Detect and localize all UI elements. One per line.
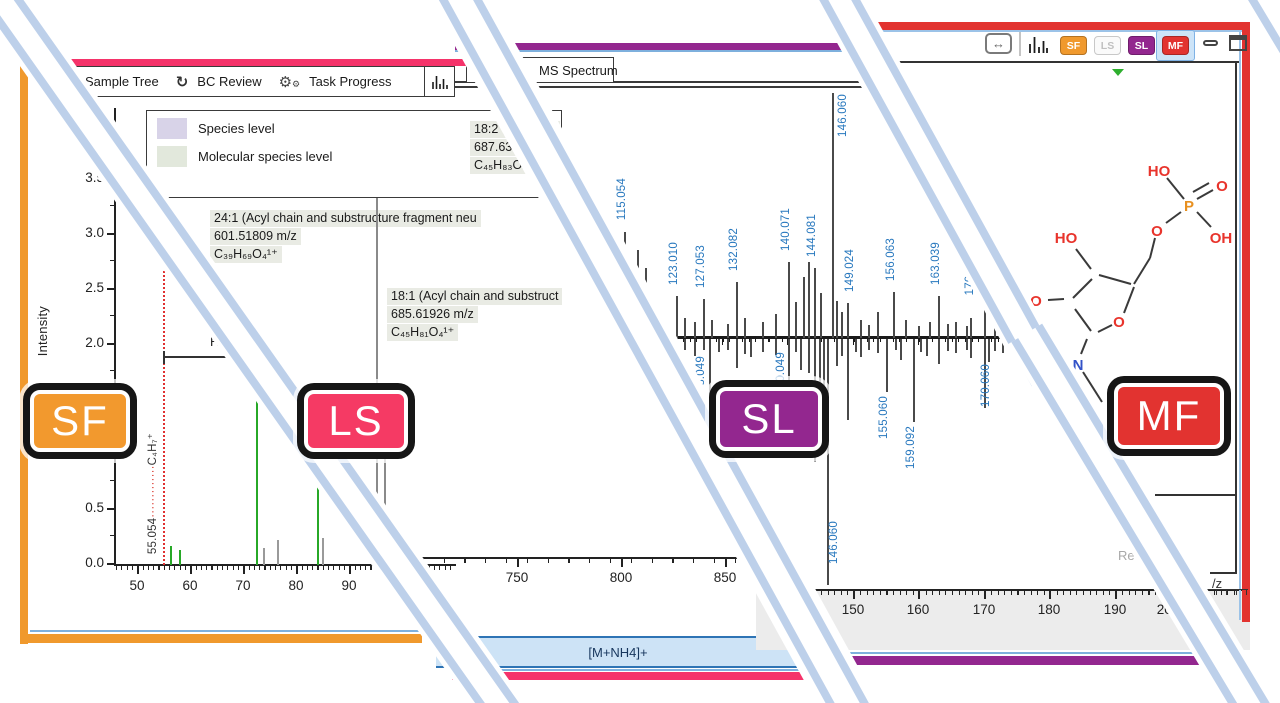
spectrum-icon	[431, 74, 449, 89]
peak-label: 140.071	[780, 208, 793, 251]
band-minor-tick	[847, 591, 848, 595]
sl-peak-down	[988, 339, 990, 362]
x-minor-tick	[360, 566, 361, 570]
y-tick	[107, 233, 115, 235]
ls-x-tick-label: 750	[500, 570, 534, 585]
sl-base-minor-tick	[978, 339, 979, 343]
band-minor-tick	[834, 591, 835, 595]
band-minor-tick	[841, 591, 842, 595]
sl-peak-down	[694, 339, 696, 356]
band-tick-label: 160	[901, 602, 935, 617]
band-minor-tick	[1070, 591, 1071, 595]
band-minor-tick	[965, 591, 966, 595]
ls-minor-tick	[714, 559, 715, 563]
ls-minor-tick	[652, 559, 653, 563]
fit-width-icon[interactable]: ↔	[985, 33, 1012, 54]
x-minor-tick	[249, 566, 250, 570]
sl-peak-up	[795, 302, 797, 338]
sl-peak-down	[855, 339, 857, 352]
band-minor-tick	[1004, 591, 1005, 595]
x-minor-tick	[264, 566, 265, 570]
x-minor-tick	[217, 566, 218, 570]
sl-base-minor-tick	[893, 339, 894, 343]
ls-adduct-label: [M+NH4]+	[588, 645, 647, 660]
sl-peak-down	[877, 339, 879, 353]
sl-peak-up	[684, 318, 686, 338]
sl-peak-up	[775, 314, 777, 338]
sl-peak-up	[847, 303, 849, 338]
x-minor-tick	[317, 566, 318, 570]
sl-peak-up	[762, 322, 764, 338]
peak-label: 132.082	[728, 228, 741, 271]
band-tick	[853, 591, 855, 599]
sl-peak-up	[929, 322, 931, 338]
sl-peak-up	[744, 318, 746, 338]
sl-peak-down	[955, 339, 957, 353]
peak-label: 156.063	[885, 238, 898, 281]
x-minor-tick	[148, 566, 149, 570]
x-minor-tick	[450, 566, 451, 570]
band-minor-tick	[1031, 591, 1032, 595]
x-minor-tick	[227, 566, 228, 570]
sl-peak-up	[868, 325, 870, 338]
x-minor-tick	[185, 566, 186, 570]
sl-base-minor-tick	[873, 339, 874, 343]
y-minor-tick	[110, 370, 115, 371]
atom-label: P	[1184, 198, 1194, 215]
sl-peak-up	[938, 296, 940, 338]
sl-peak-up	[814, 268, 816, 338]
sl-peak-down	[836, 339, 838, 366]
y-minor-tick	[110, 480, 115, 481]
y-minor-tick	[110, 315, 115, 316]
atom-label: HO	[1055, 230, 1078, 247]
mf-axis-tick	[1216, 589, 1217, 595]
sl-peak-up	[711, 320, 713, 338]
peak-label: 163.039	[930, 242, 943, 285]
peak-label: 127.053	[695, 245, 708, 288]
band-minor-tick	[939, 591, 940, 595]
x-minor-tick	[445, 566, 446, 570]
ls-x-tick	[621, 559, 623, 567]
sl-base-minor-tick	[972, 339, 973, 343]
band-minor-tick	[991, 591, 992, 595]
atom-label: HO	[1148, 163, 1171, 180]
sl-base-minor-tick	[782, 339, 783, 343]
sl-peak-up	[947, 324, 949, 338]
sl-peak-down	[966, 339, 968, 350]
sl-peak-down	[926, 339, 928, 356]
y-tick-label: 2.5	[72, 280, 104, 295]
sl-peak-down	[841, 339, 843, 356]
ls-minor-tick	[735, 559, 736, 563]
sf-window-left-border	[20, 48, 28, 644]
sf-tab-bar: Sample Tree ↻ BC Review ⚙⚙ Task Progress	[63, 66, 425, 97]
spectrum-toolbar-icon[interactable]	[1027, 34, 1049, 54]
band-minor-tick	[913, 591, 914, 595]
annotation-box: 18:1 (Acyl chain and substruct685.61926 …	[387, 288, 562, 342]
sl-peak-down	[947, 339, 949, 351]
band-minor-tick	[959, 591, 960, 595]
sl-peak-down	[913, 339, 915, 422]
sl-peak-down	[920, 339, 922, 352]
sl-peak-up	[694, 322, 696, 338]
cut-blue-stripe	[0, 0, 563, 703]
x-minor-tick	[302, 566, 303, 570]
x-tick	[190, 566, 192, 574]
sl-peak-up	[808, 262, 810, 338]
x-minor-tick	[323, 566, 324, 570]
mf-plot-bottom-line	[1210, 572, 1236, 574]
sl-base-minor-tick	[932, 339, 933, 343]
band-tick	[918, 591, 920, 599]
sl-peak-down	[736, 339, 738, 368]
refresh-check-icon: ↻	[176, 73, 189, 91]
x-minor-tick	[434, 566, 435, 570]
sl-peak-down	[847, 339, 849, 420]
sf-tab-spectrum[interactable]	[424, 66, 455, 97]
x-minor-tick	[233, 566, 234, 570]
band-minor-tick	[821, 591, 822, 595]
ls-minor-tick	[444, 559, 445, 563]
ls-x-tick-label: 800	[604, 570, 638, 585]
sl-base-minor-tick	[690, 339, 691, 343]
sl-peak-down	[727, 339, 729, 350]
band-minor-tick	[926, 591, 927, 595]
atom-label: O	[1216, 178, 1228, 195]
x-minor-tick	[206, 566, 207, 570]
x-minor-tick	[328, 566, 329, 570]
sl-base-minor-tick	[821, 339, 822, 343]
ls-minor-tick	[506, 559, 507, 563]
y-tick-label: 0.5	[72, 500, 104, 515]
green-peak	[317, 485, 319, 565]
x-tick	[137, 566, 139, 574]
band-minor-tick	[1109, 591, 1110, 595]
peak-label: 159.092	[905, 426, 918, 469]
green-peak	[170, 546, 172, 565]
gray-peak	[277, 540, 279, 565]
x-minor-tick	[365, 566, 366, 570]
sl-base-minor-tick	[880, 339, 881, 343]
y-tick-label: 2.0	[72, 335, 104, 350]
y-tick-label: 0.0	[72, 555, 104, 570]
band-tick-label: 190	[1098, 602, 1132, 617]
gears-icon: ⚙⚙	[279, 73, 301, 91]
x-minor-tick	[280, 566, 281, 570]
band-minor-tick	[1129, 591, 1130, 595]
sl-peak-up	[703, 299, 705, 338]
ls-window-bottom-blue-edge	[452, 669, 804, 671]
sl-base-minor-tick	[755, 339, 756, 343]
peak-label: 115.054	[616, 178, 629, 220]
band-minor-tick	[998, 591, 999, 595]
peak-label: 146.060	[828, 521, 841, 564]
sl-peak-up	[841, 312, 843, 338]
sl-peak-up	[966, 326, 968, 338]
x-tick-label: 70	[227, 578, 259, 593]
x-minor-tick	[355, 566, 356, 570]
band-tick	[1049, 591, 1051, 599]
toolbar-badge-sf[interactable]: SF	[1060, 36, 1087, 55]
maximize-button[interactable]	[1229, 35, 1247, 51]
x-tick-label: 80	[280, 578, 312, 593]
x-minor-tick	[339, 566, 340, 570]
sf-bracket-tick	[163, 351, 165, 364]
x-minor-tick	[254, 566, 255, 570]
mf-axis-tick	[1236, 589, 1237, 595]
sl-peak-up	[860, 320, 862, 338]
x-minor-tick	[370, 566, 371, 570]
legend-swatch-molecular	[157, 146, 187, 167]
band-minor-tick	[906, 591, 907, 595]
sl-peak-up	[893, 292, 895, 338]
x-minor-tick	[312, 566, 313, 570]
sl-peak-down	[703, 339, 705, 350]
y-minor-tick	[110, 260, 115, 261]
sf-marker-dotted-line	[163, 247, 165, 565]
toolbar-badge-ls[interactable]: LS	[1094, 36, 1121, 55]
x-tick-label: 90	[333, 578, 365, 593]
toolbar-badge-mf[interactable]: MF	[1162, 36, 1189, 55]
x-minor-tick	[127, 566, 128, 570]
sl-peak-down	[860, 339, 862, 357]
band-minor-tick	[1037, 591, 1038, 595]
band-minor-tick	[860, 591, 861, 595]
x-minor-tick	[180, 566, 181, 570]
x-minor-tick	[169, 566, 170, 570]
y-tick	[107, 508, 115, 510]
band-minor-tick	[978, 591, 979, 595]
sl-peak-down	[750, 339, 752, 357]
band-minor-tick	[952, 591, 953, 595]
legend-swatch-species	[157, 118, 187, 139]
band-minor-tick	[1063, 591, 1064, 595]
sl-peak-down	[823, 339, 825, 400]
band-minor-tick	[1057, 591, 1058, 595]
annotation-box: 24:1 (Acyl chain and substructure fragme…	[210, 210, 481, 264]
band-minor-tick	[1096, 591, 1097, 595]
sl-peak-up	[788, 262, 790, 338]
x-minor-tick	[132, 566, 133, 570]
x-minor-tick	[259, 566, 260, 570]
x-minor-tick	[291, 566, 292, 570]
band-minor-tick	[1234, 591, 1235, 595]
x-minor-tick	[238, 566, 239, 570]
sl-peak-down	[886, 339, 888, 392]
band-minor-tick	[1221, 591, 1222, 595]
sl-base-minor-tick	[998, 339, 999, 343]
x-tick	[296, 566, 298, 574]
ls-minor-tick	[568, 559, 569, 563]
mf-plot-corner-line	[1155, 494, 1236, 496]
sl-peak-down	[938, 339, 940, 364]
band-minor-tick	[1090, 591, 1091, 595]
y-tick	[107, 288, 115, 290]
ls-x-tick	[517, 559, 519, 567]
sl-window-bottom-blue-edge	[840, 652, 1245, 654]
atom-label: O	[1113, 314, 1125, 331]
x-minor-tick	[164, 566, 165, 570]
x-minor-tick	[275, 566, 276, 570]
band-minor-tick	[1017, 591, 1018, 595]
sf-window-bottom-blue-edge	[30, 630, 422, 632]
band-tick-label: 150	[836, 602, 870, 617]
atom-label: OH	[1210, 230, 1233, 247]
ls-minor-tick	[548, 559, 549, 563]
green-peak	[256, 392, 258, 565]
sf-marker-label: 55.054·············C₄H₇⁺	[147, 433, 160, 554]
annotation-line: 24:1 (Acyl chain and substructure fragme…	[210, 210, 481, 227]
ls-window-top-border	[60, 59, 490, 66]
mf-axis-tick	[1246, 589, 1247, 595]
sl-peak-down	[994, 339, 996, 351]
x-tick	[243, 566, 245, 574]
sl-peak-up	[877, 312, 879, 338]
band-minor-tick	[1024, 591, 1025, 595]
x-minor-tick	[158, 566, 159, 570]
band-minor-tick	[932, 591, 933, 595]
x-tick-label: 60	[174, 578, 206, 593]
y-tick-label: 3.0	[72, 225, 104, 240]
sl-peak-up	[820, 293, 822, 338]
tab-sample-tree[interactable]: Sample Tree	[85, 74, 159, 89]
ls-minor-tick	[527, 559, 528, 563]
mf-axis-tick	[1226, 589, 1227, 595]
sl-base-minor-tick	[952, 339, 953, 343]
peak-label: 149.024	[844, 249, 857, 292]
x-minor-tick	[121, 566, 122, 570]
band-tick-label: 170	[967, 602, 1001, 617]
annotation-line: C₄₅H₈₁O₄¹⁺	[387, 324, 458, 341]
annotation-line: 18:1 (Acyl chain and substruct	[387, 288, 562, 305]
sl-base-minor-tick	[696, 339, 697, 343]
band-minor-tick	[945, 591, 946, 595]
sl-peak-up	[970, 318, 972, 338]
sl-base-minor-tick	[958, 339, 959, 343]
x-minor-tick	[201, 566, 202, 570]
sl-peak-up	[736, 282, 738, 338]
band-minor-tick	[828, 591, 829, 595]
gray-peak	[322, 538, 324, 565]
green-peak	[179, 550, 181, 565]
band-minor-tick	[1122, 591, 1123, 595]
montage-cut-stripe	[0, 0, 567, 703]
x-minor-tick	[270, 566, 271, 570]
dropdown-triangle-icon[interactable]	[1112, 69, 1124, 76]
sl-peak-down	[808, 339, 810, 373]
sl-base-minor-tick	[768, 339, 769, 343]
sl-peak-up	[727, 324, 729, 338]
sf-window-bottom-border	[20, 634, 422, 643]
annotation-line: C₃₉H₆₉O₄¹⁺	[210, 246, 282, 263]
band-tick	[1115, 591, 1117, 599]
x-minor-tick	[116, 566, 117, 570]
sl-peak-up	[832, 93, 834, 338]
band-tick-label: 180	[1032, 602, 1066, 617]
ls-x-tick	[725, 559, 727, 567]
sl-peak-up	[955, 322, 957, 338]
toolbar-divider	[1019, 32, 1021, 56]
sl-peak-down	[795, 339, 797, 352]
montage-scene: Sample Tree ↻ BC Review ⚙⚙ Task Progress…	[0, 0, 1280, 703]
sl-peak-up	[918, 326, 920, 338]
band-minor-tick	[867, 591, 868, 595]
sl-peak-down	[744, 339, 746, 354]
sl-peak-up	[905, 320, 907, 338]
annotation-line: 685.61926 m/z	[387, 306, 478, 323]
sl-base-minor-tick	[716, 339, 717, 343]
sl-peak-up	[836, 301, 838, 338]
x-minor-tick	[153, 566, 154, 570]
x-minor-tick	[286, 566, 287, 570]
band-minor-tick	[886, 591, 887, 595]
peak-label: 146.060	[837, 94, 850, 137]
x-minor-tick	[333, 566, 334, 570]
peak-label: 170.060	[980, 364, 993, 407]
band-minor-tick	[880, 591, 881, 595]
tab-bc-review[interactable]: BC Review	[197, 74, 261, 89]
sl-window-bottom-border	[840, 656, 1245, 665]
sl-peak-down	[684, 339, 686, 350]
sl-base-minor-tick	[729, 339, 730, 343]
panel-badge-sl: SL	[716, 387, 822, 451]
x-minor-tick	[222, 566, 223, 570]
band-minor-tick	[893, 591, 894, 595]
band-minor-tick	[1044, 591, 1045, 595]
mf-window-top-border	[850, 22, 1250, 30]
sl-peak-down	[900, 339, 902, 360]
sl-peak-down	[895, 339, 897, 350]
atom-label: O	[1151, 223, 1163, 240]
band-minor-tick	[1148, 591, 1149, 595]
x-tick-label: 50	[121, 578, 153, 593]
y-tick	[107, 563, 115, 565]
ls-minor-tick	[693, 559, 694, 563]
band-minor-tick	[1103, 591, 1104, 595]
x-minor-tick	[344, 566, 345, 570]
band-minor-tick	[972, 591, 973, 595]
y-minor-tick	[110, 535, 115, 536]
minimize-button[interactable]	[1203, 40, 1218, 46]
band-minor-tick	[1135, 591, 1136, 595]
sl-base-minor-tick	[834, 339, 835, 343]
cut-blue-stripe	[787, 0, 1039, 386]
x-minor-tick	[211, 566, 212, 570]
band-minor-tick	[1083, 591, 1084, 595]
sl-base-minor-tick	[991, 339, 992, 343]
band-minor-tick	[900, 591, 901, 595]
x-minor-tick	[439, 566, 440, 570]
sl-base-tick	[722, 339, 723, 345]
ls-minor-tick	[485, 559, 486, 563]
band-minor-tick	[1214, 591, 1215, 595]
sl-peak-up	[676, 296, 678, 338]
sl-peak-down	[868, 339, 870, 350]
mf-content-top-line	[868, 61, 1239, 63]
band-minor-tick	[1142, 591, 1143, 595]
sl-peak-down	[970, 339, 972, 358]
sl-peak-down	[718, 339, 720, 352]
toolbar-badge-sl[interactable]: SL	[1128, 36, 1155, 55]
y-tick	[107, 453, 115, 455]
y-tick	[107, 343, 115, 345]
band-tick	[984, 591, 986, 599]
sl-peak-down	[762, 339, 764, 352]
tab-task-progress[interactable]: Task Progress	[309, 74, 391, 89]
band-minor-tick	[1076, 591, 1077, 595]
ls-minor-tick	[589, 559, 590, 563]
